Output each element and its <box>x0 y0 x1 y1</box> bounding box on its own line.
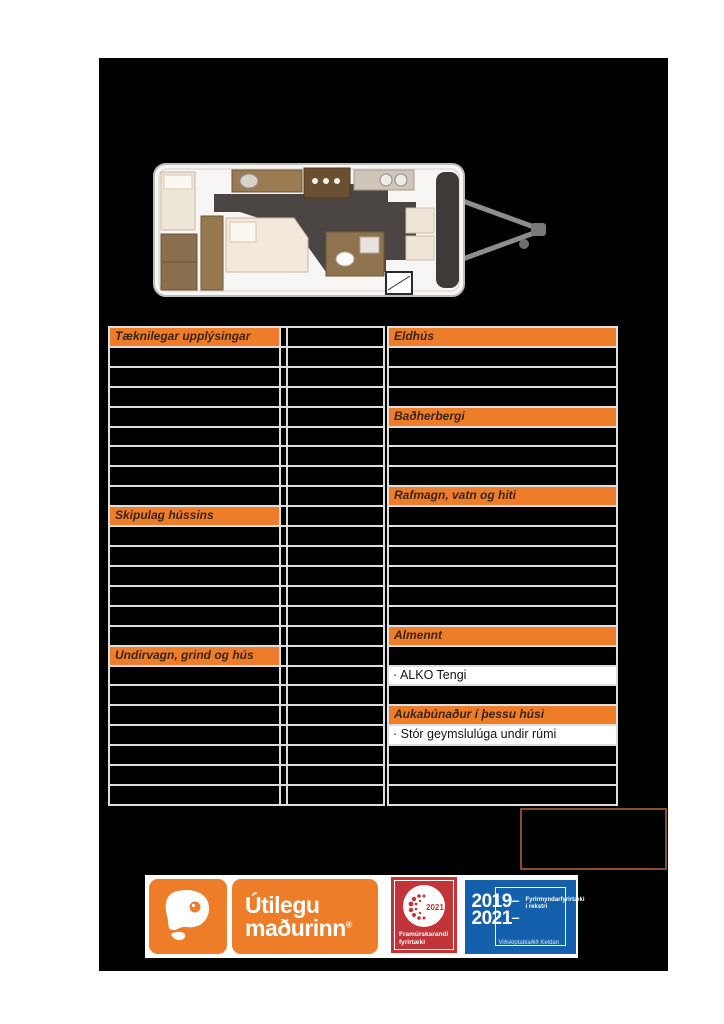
feature-item: · ALKO Tengi <box>389 667 616 685</box>
brand-name-line2: maðurinn® <box>245 917 378 940</box>
empty-cell <box>288 447 383 465</box>
feature-item: · Stór geymslulúga undir rúmi <box>389 726 616 744</box>
empty-note-box <box>520 808 667 870</box>
empty-cell <box>288 527 383 545</box>
empty-cell <box>288 607 383 625</box>
empty-cell <box>288 547 383 565</box>
section-header-technical: Tæknilegar upplýsingar <box>110 328 279 346</box>
spacer-cell <box>281 428 286 446</box>
utilegumadurinn-wordmark: Útilegu maðurinn® <box>232 879 378 954</box>
spacer-cell <box>281 447 286 465</box>
empty-cell <box>110 726 279 744</box>
empty-cell <box>288 348 383 366</box>
spacer-cell <box>281 667 286 685</box>
empty-cell <box>110 567 279 585</box>
utilegumadurinn-face-icon <box>149 879 227 954</box>
spacer-cell <box>281 766 286 784</box>
empty-cell <box>389 547 616 565</box>
empty-cell <box>288 428 383 446</box>
empty-cell <box>110 527 279 545</box>
empty-cell <box>288 388 383 406</box>
empty-cell <box>288 408 383 426</box>
spacer-cell <box>281 388 286 406</box>
spacer-cell <box>281 627 286 645</box>
empty-cell <box>389 368 616 386</box>
empty-cell <box>389 786 616 804</box>
dotted-ring-icon: 2021 <box>403 885 445 927</box>
spacer-cell <box>281 467 286 485</box>
empty-cell <box>110 447 279 465</box>
spacer-cell <box>281 328 286 346</box>
spacer-cell <box>281 527 286 545</box>
empty-cell <box>288 368 383 386</box>
section-header-kitchen: Eldhús <box>389 328 616 346</box>
empty-cell <box>288 706 383 724</box>
registered-mark: ® <box>346 919 352 929</box>
empty-cell <box>288 567 383 585</box>
section-header-power: Rafmagn, vatn og hiti <box>389 487 616 505</box>
face-profile-icon <box>158 886 218 946</box>
empty-cell <box>110 587 279 605</box>
spacer-cell <box>281 567 286 585</box>
empty-cell <box>288 667 383 685</box>
empty-cell <box>288 627 383 645</box>
empty-cell <box>110 607 279 625</box>
empty-cell <box>288 328 383 346</box>
empty-cell <box>110 428 279 446</box>
spacer-cell <box>281 487 286 505</box>
table-features: Eldhús Baðherbergi Rafmagn, vatn og hiti… <box>387 326 618 806</box>
empty-cell <box>389 467 616 485</box>
badge-source: Viðskiptablaðið Keldan <box>499 940 560 946</box>
empty-cell <box>110 408 279 426</box>
badge-blue-inner: 2019– 2021– Fyrirmyndarfyrirtæki í rekst… <box>465 880 576 954</box>
spacer-cell <box>281 647 286 665</box>
section-header-extras: Aukabúnaður í þessu húsi <box>389 706 616 724</box>
empty-cell <box>288 647 383 665</box>
spacer-cell <box>281 726 286 744</box>
section-header-chassis: Undirvagn, grind og hús <box>110 647 279 665</box>
empty-cell <box>288 726 383 744</box>
empty-cell <box>288 507 383 525</box>
empty-cell <box>389 507 616 525</box>
empty-cell <box>389 527 616 545</box>
brand-name-line1: Útilegu <box>245 894 378 917</box>
section-header-bathroom: Baðherbergi <box>389 408 616 426</box>
document-page: Tæknilegar upplýsingar Skipulag hússins … <box>0 0 724 1024</box>
empty-cell <box>110 667 279 685</box>
empty-cell <box>288 487 383 505</box>
spacer-cell <box>281 686 286 704</box>
empty-cell <box>389 348 616 366</box>
empty-cell <box>288 766 383 784</box>
empty-cell <box>288 467 383 485</box>
empty-cell <box>110 706 279 724</box>
empty-cell <box>110 348 279 366</box>
caravan-floorplan-image <box>148 158 548 303</box>
spacer-cell <box>281 706 286 724</box>
empty-cell <box>389 447 616 465</box>
empty-cell <box>389 388 616 406</box>
badge-label: Fyrirmyndarfyrirtæki í rekstri <box>526 897 585 913</box>
empty-cell <box>288 786 383 804</box>
empty-cell <box>389 428 616 446</box>
empty-cell <box>110 368 279 386</box>
badge-years: 2019– 2021– <box>472 893 520 928</box>
empty-cell <box>110 627 279 645</box>
empty-cell <box>288 746 383 764</box>
spacer-cell <box>281 348 286 366</box>
logo-strip: Útilegu maðurinn® 2021 Framúrskarandi <box>145 875 578 958</box>
empty-cell <box>288 587 383 605</box>
empty-cell <box>389 766 616 784</box>
spacer-cell <box>281 746 286 764</box>
empty-cell <box>389 647 616 665</box>
empty-cell <box>389 587 616 605</box>
spacer-cell <box>281 786 286 804</box>
spacer-cell <box>281 408 286 426</box>
empty-cell <box>389 607 616 625</box>
empty-cell <box>389 746 616 764</box>
spacer-cell <box>281 507 286 525</box>
empty-cell <box>288 686 383 704</box>
section-header-layout: Skipulag hússins <box>110 507 279 525</box>
fyrirmyndar-badge: 2019– 2021– Fyrirmyndarfyrirtæki í rekst… <box>462 877 578 956</box>
empty-cell <box>110 547 279 565</box>
spacer-cell <box>281 547 286 565</box>
empty-cell <box>389 567 616 585</box>
empty-cell <box>389 686 616 704</box>
empty-cell <box>110 388 279 406</box>
section-header-general: Almennt <box>389 627 616 645</box>
empty-cell <box>110 786 279 804</box>
spacer-cell <box>281 368 286 386</box>
empty-cell <box>110 686 279 704</box>
table-technical-info: Tæknilegar upplýsingar Skipulag hússins … <box>108 326 385 806</box>
framurskarandi-badge: 2021 Framúrskarandi fyrirtæki <box>391 877 457 953</box>
spacer-cell <box>281 607 286 625</box>
empty-cell <box>110 487 279 505</box>
svg-text:2021: 2021 <box>426 903 444 912</box>
empty-cell <box>110 746 279 764</box>
empty-cell <box>110 467 279 485</box>
empty-cell <box>110 766 279 784</box>
badge-label: Framúrskarandi fyrirtæki <box>399 931 448 947</box>
spacer-cell <box>281 587 286 605</box>
